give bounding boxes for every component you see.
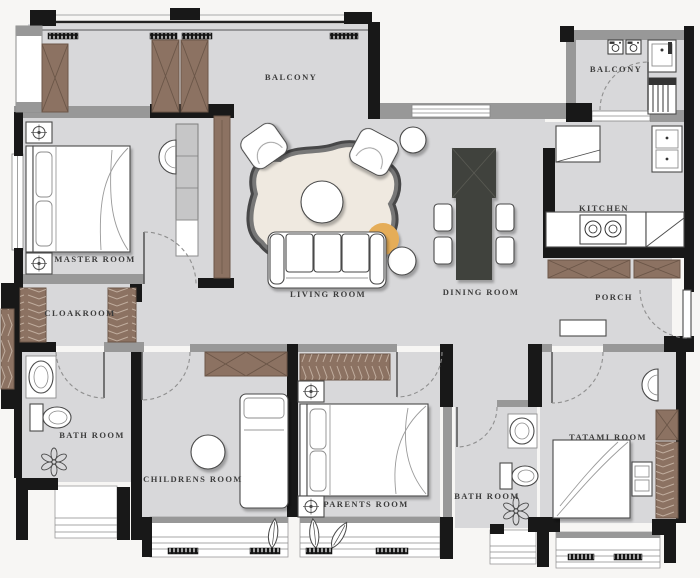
label-kitchen: KITCHEN	[579, 203, 629, 213]
label-living-room: LIVING ROOM	[290, 289, 366, 299]
floor-plan-canvas: BALCONY BALCONY MASTER ROOM CLOAKROOM LI…	[0, 0, 700, 578]
label-master-room: MASTER ROOM	[54, 254, 135, 264]
entry-door-leaf	[683, 290, 691, 338]
label-bath-room-left: BATH ROOM	[59, 430, 125, 440]
drying-rack	[648, 78, 676, 114]
corner-counter	[646, 212, 684, 247]
label-parents-room: PARENTS ROOM	[323, 499, 408, 509]
side-table-bottom	[388, 247, 416, 275]
label-porch: PORCH	[595, 292, 633, 302]
nightstand-master-top	[26, 122, 52, 143]
nightstand-parents-bottom	[298, 496, 324, 517]
parents-bed	[300, 404, 428, 496]
nightstand-parents-top	[298, 381, 324, 402]
label-bath-room-right: BATH ROOM	[454, 491, 520, 501]
exterior-insulation-strips	[1, 309, 14, 389]
porch-bench	[560, 320, 606, 336]
tatami-bed	[553, 440, 630, 518]
coffee-table	[301, 181, 343, 223]
floor-plan-drawing: BALCONY BALCONY MASTER ROOM CLOAKROOM LI…	[0, 0, 700, 578]
stove	[580, 215, 626, 244]
label-cloakroom: CLOAKROOM	[44, 308, 115, 318]
label-balcony-main: BALCONY	[265, 72, 317, 82]
master-bed	[26, 146, 130, 252]
dining-table	[456, 198, 492, 280]
side-table-top	[400, 127, 426, 153]
nightstand-master-bottom	[26, 253, 52, 274]
fridge	[556, 126, 600, 162]
label-childrens-room: CHILDRENS ROOM	[143, 474, 243, 484]
dryer-icon	[626, 40, 641, 54]
childrens-bed	[240, 394, 288, 508]
sofa	[268, 232, 386, 288]
sink-right	[510, 418, 534, 444]
label-balcony-laundry: BALCONY	[590, 64, 642, 74]
label-tatami-room: TATAMI ROOM	[569, 432, 647, 442]
washer-icon	[608, 40, 623, 54]
tatami-side-table	[632, 462, 652, 496]
label-dining-room: DINING ROOM	[443, 287, 520, 297]
childrens-table	[191, 435, 225, 469]
